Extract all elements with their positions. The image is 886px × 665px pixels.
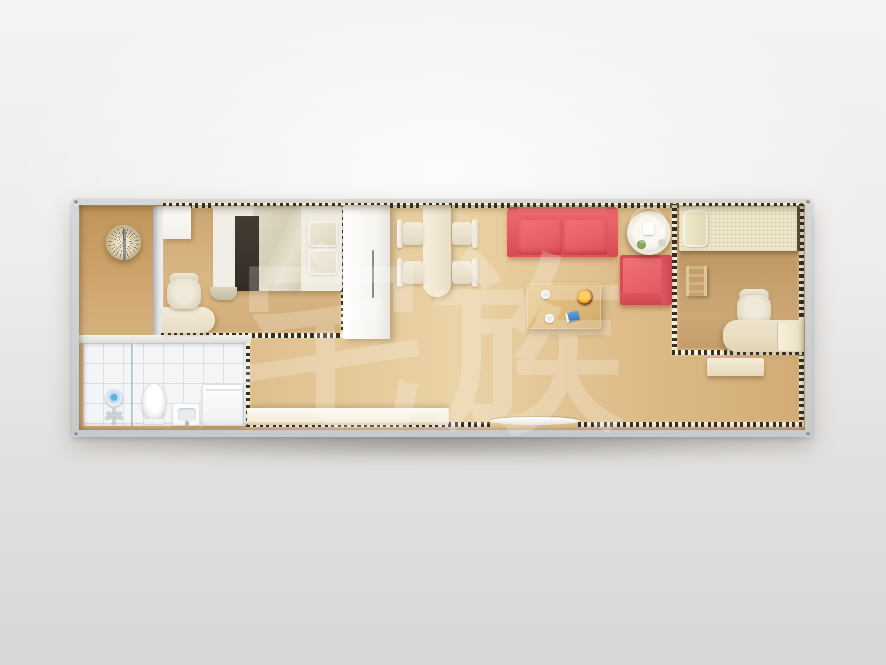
floor-plan-render: 宅族 ®: [0, 0, 886, 665]
bed-runner: [235, 216, 259, 291]
single-bed: [679, 206, 800, 251]
console-table: [707, 358, 764, 376]
washing-machine: [202, 384, 243, 426]
dining-chair: [397, 219, 424, 248]
toilet-tank: [143, 418, 165, 425]
bedroom2-desk: [723, 320, 804, 352]
bedroom1-desk-chair: [165, 273, 203, 310]
sofa-armrest: [507, 209, 518, 258]
toilet: [140, 383, 168, 425]
basin-bowl: [178, 408, 196, 421]
shower-head: [105, 389, 123, 407]
corner-bolt: [74, 432, 78, 436]
fruit-bowl: [577, 289, 593, 305]
sofa-cushion: [563, 220, 607, 255]
blanket-tail: [210, 287, 237, 300]
basin-tap: [185, 421, 189, 427]
bathroom: [83, 343, 246, 426]
bedroom1-desk: [162, 307, 215, 333]
coffee-table: [527, 283, 601, 329]
bed-ladder: [686, 266, 707, 296]
cup: [541, 290, 550, 299]
bathroom-top-wall: [79, 335, 251, 343]
book: [565, 311, 580, 323]
desk-drawer-unit: [777, 322, 803, 351]
entrance-door-sill: [490, 417, 580, 425]
toilet-bowl: [142, 383, 166, 419]
chair-seat: [167, 279, 201, 309]
corner-bolt: [74, 200, 78, 204]
wash-basin: [172, 403, 200, 426]
pillow: [308, 249, 338, 275]
mug: [643, 222, 654, 235]
sofa-cushion: [518, 220, 562, 255]
hanging-rattan-chair: [106, 225, 141, 260]
double-bed: [213, 206, 342, 291]
kitchen-counter: [247, 408, 449, 425]
corner-bolt: [806, 432, 810, 436]
pillow: [683, 210, 708, 247]
dining-table: [423, 205, 451, 297]
container-module: [72, 199, 812, 437]
washer-lid-line: [206, 389, 241, 391]
shower-glass-partition: [131, 343, 133, 426]
red-sofa: [508, 207, 617, 257]
armchair-arm: [620, 293, 662, 305]
dining-chair: [451, 219, 478, 248]
wardrobe-handle: [372, 250, 374, 298]
dining-chair: [451, 258, 478, 287]
chair-frame-bar: [123, 229, 126, 260]
corner-bolt: [806, 200, 810, 204]
small-object: [658, 239, 666, 247]
dining-chair: [397, 258, 424, 287]
wardrobe: [343, 205, 390, 339]
shower-drain: [104, 407, 124, 424]
sofa-back: [518, 207, 607, 221]
armchair-back: [661, 255, 672, 305]
bottom-dashed-wall-right: [578, 422, 804, 427]
duvet: [253, 206, 301, 291]
round-side-table: [627, 211, 671, 255]
sofa-armrest: [607, 209, 618, 258]
cup: [545, 314, 554, 323]
red-armchair: [620, 255, 672, 305]
bedroom2-left-dashed-wall: [672, 204, 677, 354]
armchair-cushion: [623, 258, 661, 293]
pillow: [308, 221, 338, 247]
small-plant: [637, 240, 646, 249]
bedside-cabinet: [163, 206, 191, 239]
